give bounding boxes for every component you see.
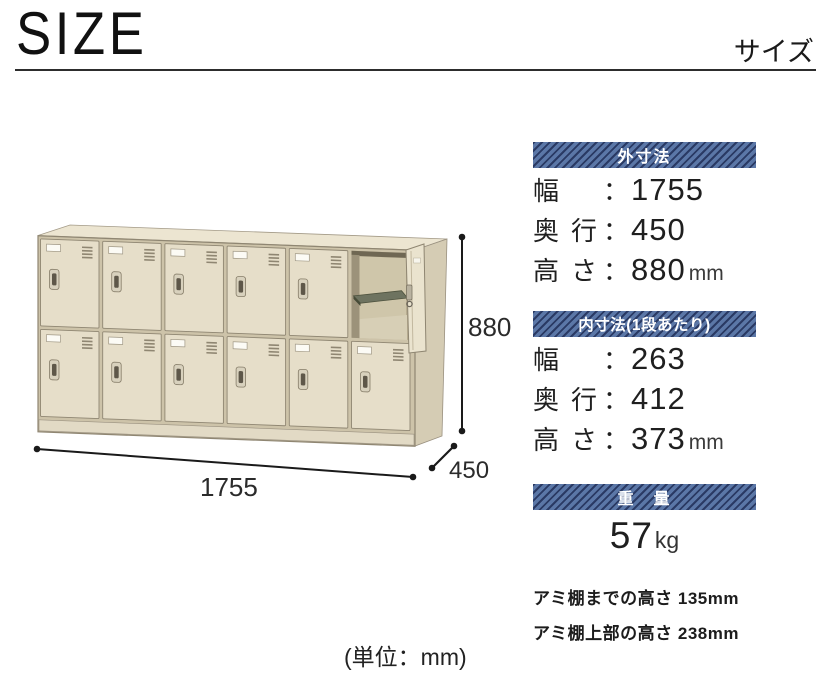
dim-colon: ： [603, 171, 629, 208]
name-plate [233, 251, 247, 259]
depth-dim-label: 450 [449, 457, 489, 484]
weight-panel: 重 量 57kg [533, 484, 756, 557]
dim-colon: ： [603, 211, 629, 248]
panel-heading: 外寸法 [533, 142, 756, 168]
dim-label: 高さ [533, 251, 597, 288]
weight-row: 57kg [533, 515, 756, 557]
name-plate [295, 254, 309, 262]
weight-value: 57 [610, 515, 653, 557]
name-plate [47, 244, 61, 252]
locker-door [289, 248, 348, 337]
locker-door [41, 239, 100, 328]
dimension-row: 高さ：373mm [533, 420, 756, 460]
open-door [406, 244, 426, 353]
dimension-rows: 幅：263 奥行：412 高さ：373mm [533, 337, 756, 460]
dimension-endpoint-dot [410, 474, 417, 481]
locker-door [165, 244, 224, 333]
locker-door [103, 241, 162, 330]
page-title: SIZE [16, 2, 147, 65]
locker-door [103, 332, 162, 421]
page-subtitle: サイズ [734, 30, 814, 69]
width-dimension: 1755 [34, 446, 417, 502]
dim-colon: ： [603, 251, 629, 288]
height-dimension: 880 [459, 234, 512, 435]
locker-door [41, 329, 100, 418]
dim-label: 幅 [533, 340, 597, 377]
door-lock-icon [407, 285, 413, 300]
name-plate [171, 339, 185, 347]
dimension-endpoint-dot [451, 443, 458, 450]
name-plate [171, 249, 185, 257]
locker-door [165, 334, 224, 423]
dim-unit: mm [689, 431, 724, 455]
dimension-endpoint-dot [34, 446, 41, 453]
compartment-back-wall [360, 256, 407, 321]
panel-heading: 重 量 [533, 484, 756, 510]
header-divider [15, 69, 816, 71]
dim-label: 高さ [533, 420, 597, 457]
dim-value: 373 [631, 421, 686, 457]
name-plate [358, 347, 372, 355]
width-dim-label: 1755 [200, 472, 258, 502]
dim-colon: ： [603, 420, 629, 457]
shelf-height-note: アミ棚までの高さ 135mm [533, 584, 739, 609]
name-plate [109, 246, 123, 254]
locker-door [289, 339, 348, 428]
height-dim-label: 880 [468, 312, 511, 342]
locker-door [227, 246, 286, 335]
locker-door [227, 337, 286, 426]
inner-dimensions-panel: 内寸法(1段あたり) 幅：263 奥行：412 高さ：373mm [533, 311, 756, 460]
locker-illustration: 880 1755 450 [18, 215, 518, 505]
name-plate [47, 335, 61, 343]
dim-value: 263 [631, 341, 686, 377]
panel-heading: 内寸法(1段あたり) [533, 311, 756, 337]
dimension-row: 幅：1755 [533, 171, 756, 211]
dimension-row: 高さ：880mm [533, 251, 756, 291]
locker-diagram: 880 1755 450 [18, 215, 518, 505]
outer-dimensions-panel: 外寸法 幅：1755 奥行：450 高さ：880mm [533, 142, 756, 291]
dimension-rows: 幅：1755 奥行：450 高さ：880mm [533, 168, 756, 291]
name-plate [109, 337, 123, 345]
dim-value: 880 [631, 252, 686, 288]
open-compartment [352, 251, 411, 340]
dim-value: 1755 [631, 172, 704, 208]
open-door-label-sticker [414, 258, 421, 263]
weight-unit: kg [655, 527, 679, 554]
locker-door [352, 341, 411, 430]
shelf-top-height-note: アミ棚上部の高さ 238mm [533, 619, 739, 644]
dimension-endpoint-dot [459, 234, 466, 241]
name-plate [295, 344, 309, 352]
dimension-row: 幅：263 [533, 340, 756, 380]
cabinet-front [38, 236, 415, 446]
dimension-endpoint-dot [459, 428, 466, 435]
dim-value: 450 [631, 212, 686, 248]
dim-colon: ： [603, 380, 629, 417]
dim-label: 奥行 [533, 380, 597, 417]
dim-label: 奥行 [533, 211, 597, 248]
name-plate [233, 342, 247, 350]
dim-value: 412 [631, 381, 686, 417]
unit-note: (単位：mm) [344, 638, 467, 672]
dimension-row: 奥行：450 [533, 211, 756, 251]
depth-dimension: 450 [429, 443, 489, 484]
size-spec-page: SIZE サイズ [0, 0, 830, 700]
dim-colon: ： [603, 340, 629, 377]
dim-label: 幅 [533, 171, 597, 208]
dim-unit: mm [689, 262, 724, 286]
dimension-row: 奥行：412 [533, 380, 756, 420]
dimension-endpoint-dot [429, 465, 436, 472]
